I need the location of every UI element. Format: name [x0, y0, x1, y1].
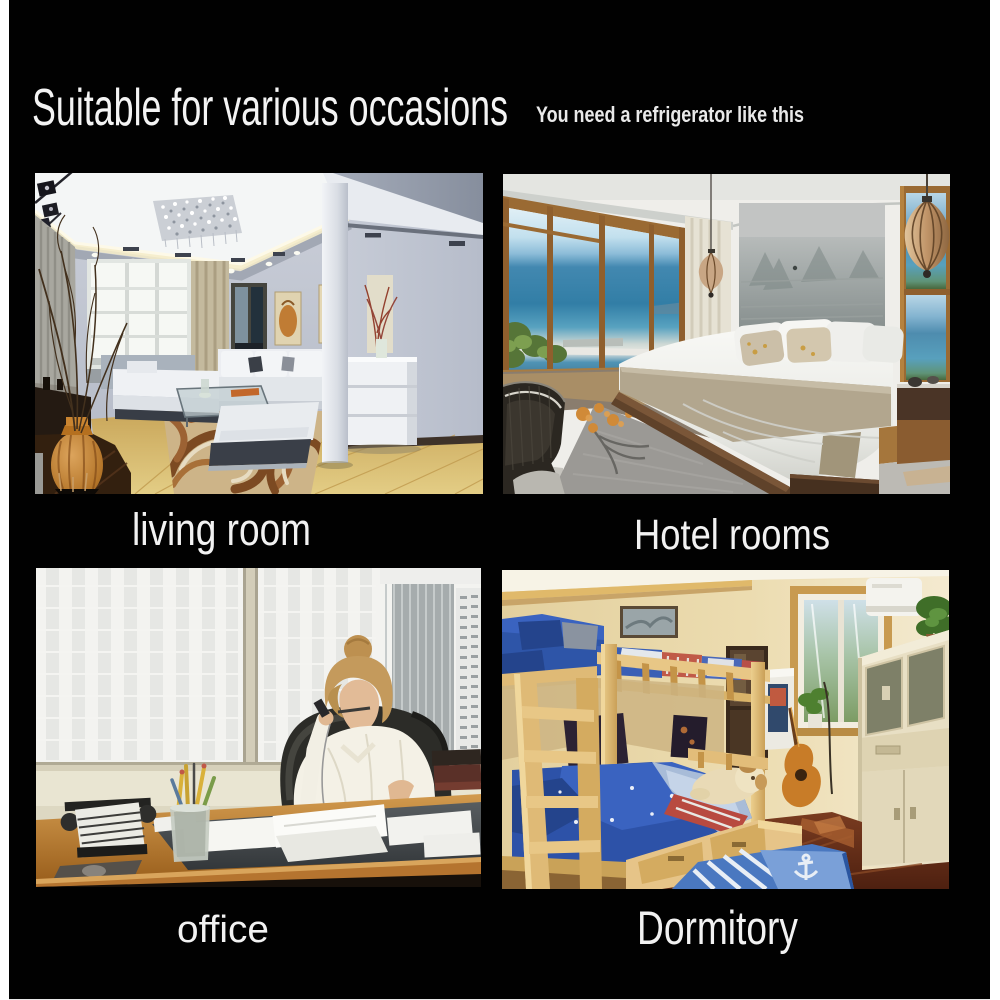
svg-text:Hotel rooms: Hotel rooms [634, 511, 830, 559]
svg-text:office: office [177, 909, 269, 951]
svg-text:living room: living room [132, 504, 311, 555]
svg-text:You need a refrigerator like t: You need a refrigerator like this [536, 102, 804, 127]
svg-text:Dormitory: Dormitory [637, 901, 798, 954]
svg-text:Suitable for various occasions: Suitable for various occasions [32, 79, 508, 137]
